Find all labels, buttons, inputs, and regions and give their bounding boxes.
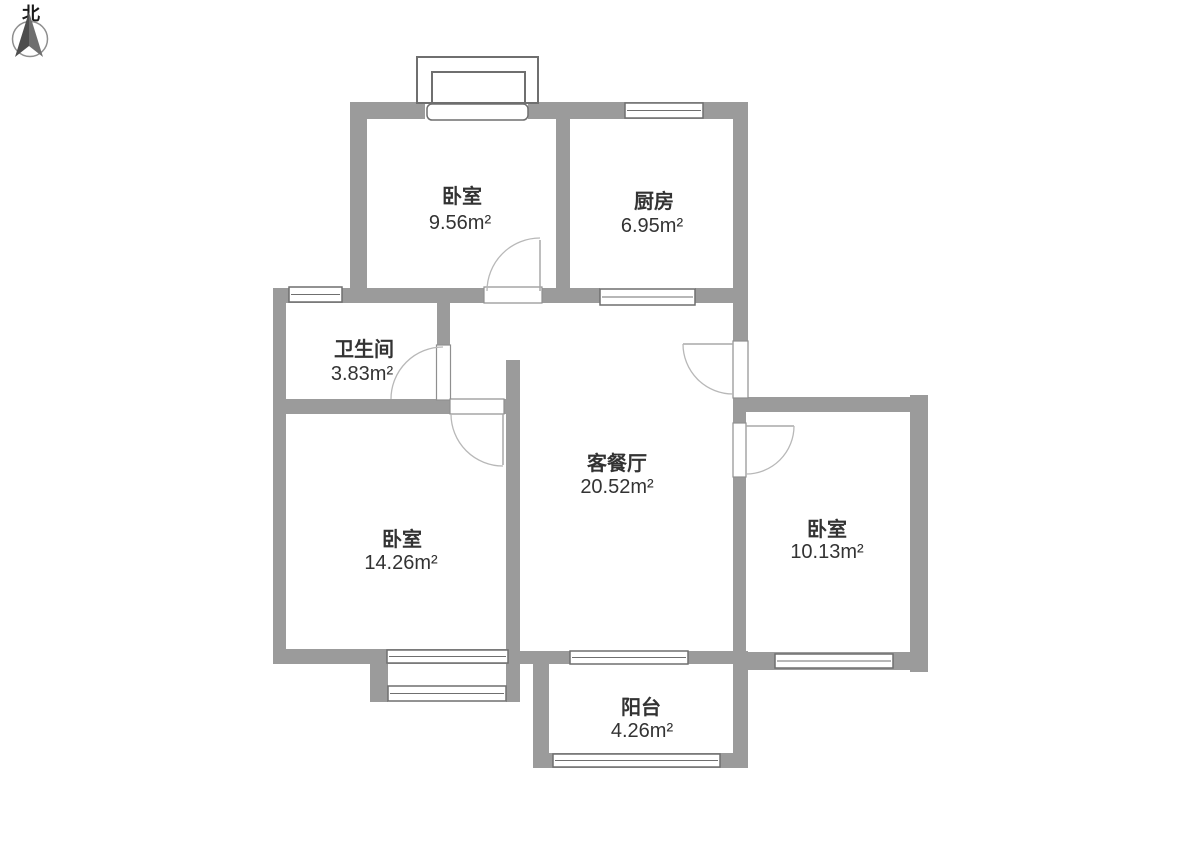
wall-segment [285, 399, 450, 414]
door-swing-arc [746, 426, 794, 474]
door-panel [450, 399, 504, 414]
wall-segment [506, 662, 520, 702]
room-name: 厨房 [634, 189, 674, 213]
bathroom-window [289, 287, 342, 302]
wall-segment [556, 102, 570, 303]
door-panel [484, 287, 542, 303]
room-name: 客餐厅 [586, 451, 647, 475]
wall-segment [733, 652, 748, 768]
wall-segment [733, 102, 748, 342]
wall-segment [437, 303, 450, 346]
room-area: 10.13m² [790, 541, 864, 563]
room-area: 6.95m² [621, 215, 684, 237]
wall-segment [733, 397, 928, 412]
kitchen-pass-door [600, 289, 695, 305]
entry-door [683, 341, 748, 398]
compass: 北 [13, 4, 48, 57]
door-swing-arc [487, 238, 540, 291]
room-name: 卧室 [442, 184, 482, 208]
room-bathroom: 卫生间 3.83m² [331, 338, 394, 385]
kitchen-top-window [625, 103, 703, 118]
wall-segment [733, 412, 746, 423]
room-area: 9.56m² [429, 212, 492, 234]
wall-segment [370, 660, 388, 702]
bedroom-right-door [733, 423, 794, 477]
door-panel [733, 341, 748, 398]
room-area: 4.26m² [611, 720, 674, 742]
room-bedroom-top: 卧室 9.56m² [429, 184, 492, 234]
door-panel [733, 423, 746, 477]
floor-plan: 卧室 9.56m² 厨房 6.95m² 卫生间 3.83m² 客餐厅 20.52… [0, 0, 1200, 860]
room-name: 卫生间 [334, 338, 394, 361]
floor-plan-page: 卧室 9.56m² 厨房 6.95m² 卫生间 3.83m² 客餐厅 20.52… [0, 0, 1200, 860]
wall-segment [506, 360, 520, 651]
room-name: 阳台 [621, 695, 661, 719]
bedroom-left-door [450, 399, 504, 466]
wall-segment [910, 395, 928, 672]
balcony-window [553, 754, 720, 767]
bay-window-top [417, 57, 538, 120]
wall-segment [542, 288, 600, 303]
room-kitchen: 厨房 6.95m² [621, 189, 684, 237]
room-bedroom-right: 卧室 10.13m² [790, 517, 864, 563]
room-bedroom-left: 卧室 14.26m² [364, 527, 438, 574]
wall-segment [533, 655, 549, 768]
room-area: 3.83m² [331, 363, 394, 385]
living-balcony-slider [570, 651, 688, 664]
bathroom-door [391, 345, 451, 400]
room-name: 卧室 [382, 527, 422, 551]
room-area: 20.52m² [580, 476, 654, 498]
room-name: 卧室 [807, 517, 847, 541]
bay-window-inner [432, 72, 525, 103]
room-balcony: 阳台 4.26m² [611, 695, 674, 742]
door-panel [437, 345, 451, 400]
bedroom-top-door [484, 238, 542, 303]
door-swing-arc [683, 344, 733, 394]
room-area: 14.26m² [364, 552, 438, 574]
wall-segment [350, 102, 367, 303]
bedroom-right-window [775, 654, 893, 668]
door-swing-arc [451, 414, 503, 466]
window-sill [427, 104, 528, 120]
door-swing-arc [391, 347, 443, 399]
wall-segment [733, 477, 746, 652]
room-living-dining: 客餐厅 20.52m² [580, 451, 654, 498]
bay-window-bottom [388, 686, 506, 701]
wall-segment [273, 288, 286, 664]
bedroom-left-window [387, 650, 508, 663]
